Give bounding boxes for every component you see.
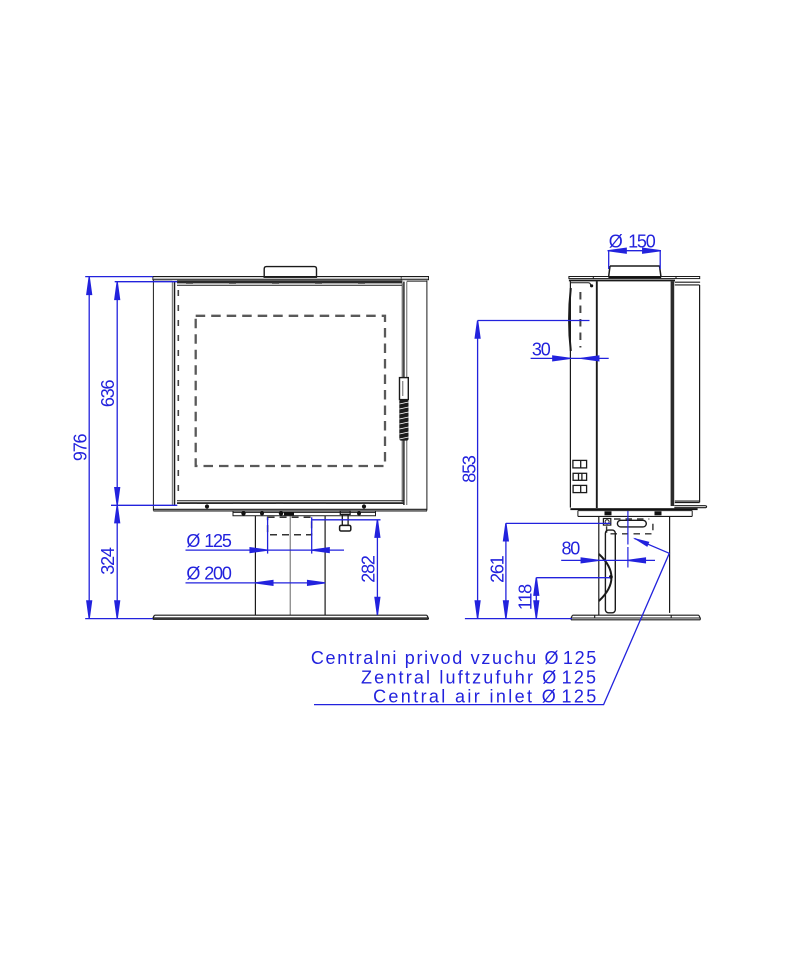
svg-text:261: 261 [488, 555, 508, 583]
svg-text:118: 118 [515, 584, 535, 610]
svg-text:636: 636 [98, 379, 118, 407]
svg-text:30: 30 [532, 340, 551, 360]
svg-text:Ø125: Ø125 [186, 531, 231, 551]
svg-text:Central air inlet Ø 125: Central air inlet Ø 125 [373, 686, 599, 706]
svg-text:Zentral luftzufuhr Ø 125: Zentral luftzufuhr Ø 125 [361, 667, 598, 687]
svg-text:976: 976 [71, 433, 91, 461]
svg-text:Centralni privod vzuchu Ø 125: Centralni privod vzuchu Ø 125 [311, 648, 598, 668]
svg-text:Ø200: Ø200 [186, 564, 231, 584]
svg-text:853: 853 [460, 455, 480, 483]
svg-text:80: 80 [562, 539, 581, 559]
svg-text:324: 324 [98, 547, 118, 575]
svg-text:Ø150: Ø150 [609, 231, 656, 251]
svg-text:282: 282 [358, 555, 378, 583]
